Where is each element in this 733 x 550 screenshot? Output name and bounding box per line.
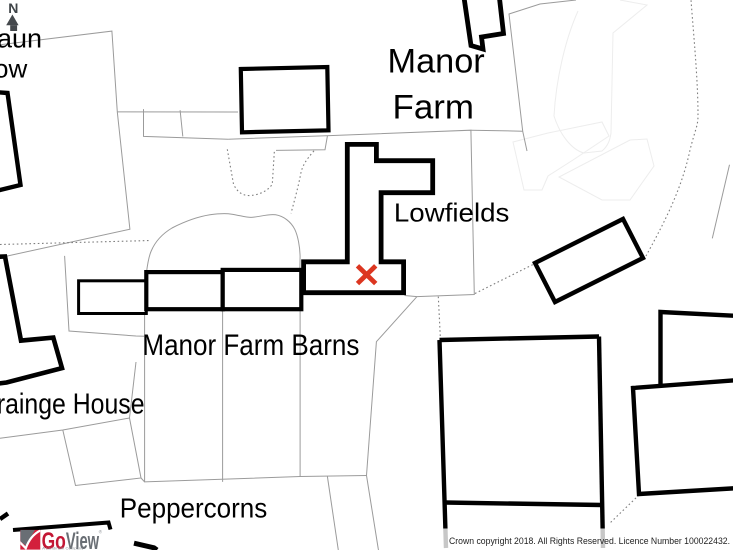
- svg-text:A Landmark Company: A Landmark Company: [42, 546, 83, 550]
- svg-text:Manor Farm Barns: Manor Farm Barns: [142, 328, 359, 361]
- svg-text:ow: ow: [0, 54, 27, 84]
- svg-text:Lowfields: Lowfields: [394, 198, 510, 228]
- svg-text:Peppercorns: Peppercorns: [120, 493, 268, 524]
- svg-text:Crown copyright 2018. All Righ: Crown copyright 2018. All Rights Reserve…: [449, 536, 730, 546]
- svg-text:Manor: Manor: [388, 43, 485, 81]
- svg-text:Farm: Farm: [393, 89, 475, 127]
- svg-text:Grainge House: Grainge House: [0, 387, 145, 419]
- svg-text:aun: aun: [0, 24, 42, 54]
- svg-text:N: N: [8, 0, 18, 16]
